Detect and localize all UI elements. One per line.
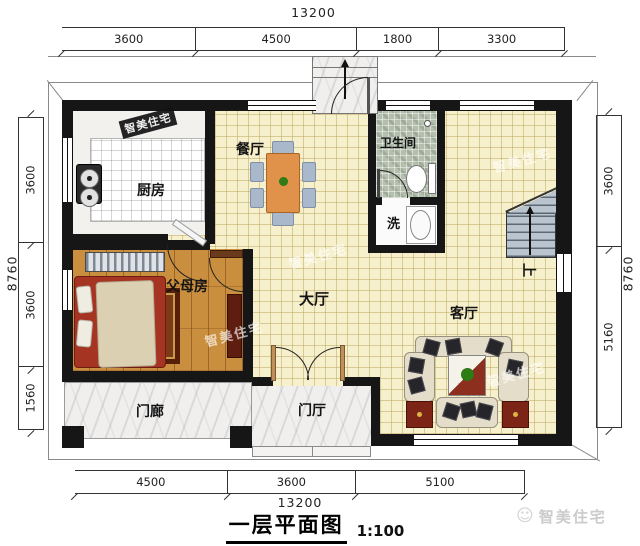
dim-right-bar: 3600 5160 [596, 115, 622, 428]
entry-door-leaf-right [340, 345, 345, 381]
stairs-up-label: 上 [519, 263, 539, 277]
room-label-dining: 餐厅 [236, 139, 264, 159]
bedroom-door-leaf [210, 250, 243, 258]
wall-bathroom-bottom-left [368, 197, 382, 205]
dining-chair [302, 162, 316, 182]
dim-bottom-total: 13200 [75, 495, 525, 510]
side-table-knob [417, 412, 422, 417]
dim-segment: 5160 [597, 247, 621, 428]
sofa-pillow [408, 357, 425, 374]
side-table-knob [513, 412, 518, 417]
room-label-foyer: 门厅 [298, 400, 326, 420]
dim-segment: 1800 [357, 28, 439, 50]
dim-segment: 3600 [19, 117, 43, 243]
foyer-step-divider [312, 447, 313, 456]
sofa-pillow [445, 338, 462, 355]
stair-direction-arrow [529, 213, 531, 255]
wall-foyer-top-left [252, 377, 273, 386]
stove-burner [80, 188, 99, 207]
room-label-porch: 门廊 [136, 401, 164, 421]
bathroom-door-leaf [377, 169, 380, 198]
bathroom-drain [424, 120, 431, 127]
kitchen-window [62, 138, 73, 202]
dim-segment: 5100 [356, 471, 525, 493]
back-entry-steps [312, 56, 378, 114]
stair-side-window [556, 254, 572, 292]
room-label-bathroom: 卫生间 [380, 134, 416, 151]
stair-hall-window [460, 100, 534, 111]
wall-wash-bottom [368, 245, 445, 253]
dim-segment: 3600 [62, 28, 196, 50]
wall-bedroom-right [243, 249, 253, 382]
dining-table-plant [279, 177, 288, 186]
room-label-kitchen: 厨房 [137, 180, 165, 200]
floor-plan: 厨房 餐厅 卫生间 洗 大厅 客厅 父母房 门廊 门厅 上 智美住宅 智美住宅 … [0, 0, 640, 546]
drawing-title: 一层平面图 [226, 509, 347, 544]
dim-top-bar: 3600 4500 1800 3300 [62, 27, 565, 51]
porch-column [62, 426, 84, 448]
toilet-bowl [406, 165, 427, 193]
porch-column [230, 426, 252, 448]
drawing-scale: 1:100 [357, 522, 405, 544]
brand-logo-icon: ☺ [516, 508, 534, 525]
back-door-swing [331, 77, 368, 114]
room-label-parents: 父母房 [166, 276, 208, 296]
back-entry-arrow-head [341, 59, 349, 67]
staircase [506, 212, 556, 258]
stove-burner [80, 169, 99, 188]
dim-segment: 3300 [439, 28, 565, 50]
wall-bathroom-right [437, 110, 445, 253]
wardrobe [85, 252, 165, 272]
bathroom-window [386, 100, 430, 111]
stair-arrow-head [526, 206, 534, 214]
wall-bedroom-bottom [62, 371, 252, 382]
dim-bottom-bar: 4500 3600 5100 [75, 470, 525, 494]
bed-pillow [76, 285, 94, 313]
wall-kitchen-bottom [62, 234, 168, 244]
brand-footer: ☺ 智美住宅 [516, 506, 607, 527]
room-label-living: 客厅 [450, 303, 478, 323]
room-label-wash: 洗 [387, 213, 400, 232]
dim-segment: 3600 [597, 115, 621, 247]
dim-segment: 3600 [19, 243, 43, 368]
room-label-hall: 大厅 [299, 288, 329, 309]
bed-pillow [76, 319, 93, 347]
bed-quilt [96, 280, 157, 368]
dining-chair [250, 162, 264, 182]
dim-segment: 4500 [75, 471, 228, 493]
foyer-step [252, 446, 371, 457]
brand-name: 智美住宅 [539, 506, 607, 527]
dim-right-total: 8760 [621, 252, 636, 296]
wash-basin [410, 210, 431, 240]
dining-chair [302, 188, 316, 208]
drawing-title-block: 一层平面图 1:100 [150, 509, 480, 544]
wall-foyer-right [371, 377, 380, 446]
bedroom-window [62, 270, 73, 310]
dim-segment: 4500 [196, 28, 356, 50]
living-window [414, 434, 518, 446]
dim-top-total: 13200 [62, 5, 565, 20]
toilet-tank [428, 163, 436, 194]
dim-segment: 1560 [19, 367, 43, 430]
dim-segment: 3600 [228, 471, 356, 493]
dining-window [248, 100, 316, 111]
dining-chair [250, 188, 264, 208]
entry-door-leaf-left [271, 345, 276, 381]
wall-bathroom-bottom-right [410, 197, 445, 205]
dining-chair [272, 212, 294, 226]
living-rug-plant [461, 368, 474, 381]
dim-left-bar: 3600 3600 1560 [18, 117, 44, 430]
wall-bathroom-left [368, 110, 376, 253]
wall-kitchen-right [205, 110, 215, 244]
